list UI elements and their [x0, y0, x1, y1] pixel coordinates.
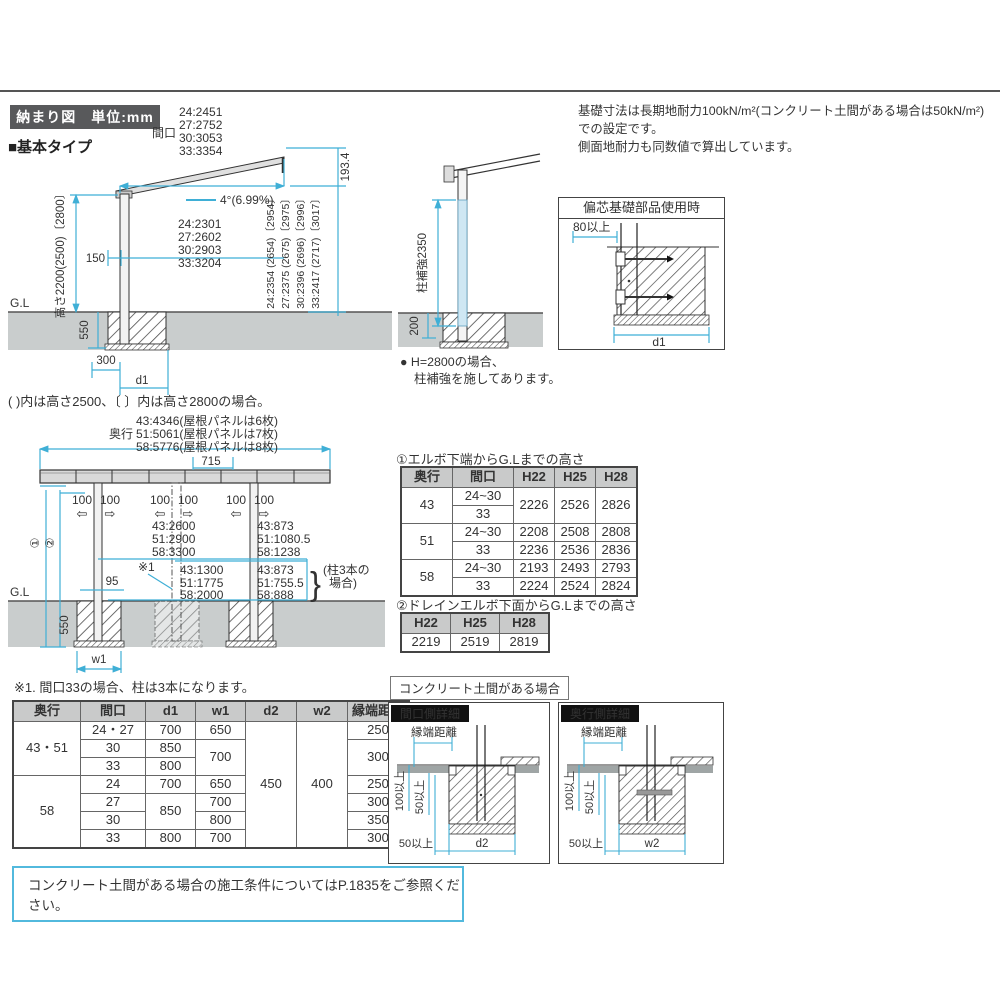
foundation-note: 基礎寸法は長期地耐力100kN/m²(コンクリート土間がある場合は50kN/m²… — [578, 103, 996, 157]
detail-title: 奥行側詳細 — [570, 706, 630, 721]
cell: 2824 — [596, 578, 638, 597]
table-header-row: H22 H25 H28 — [401, 613, 549, 634]
circle-2: ② — [43, 538, 57, 549]
dim-200: 200 — [409, 316, 421, 335]
table-header-row: 奥行 間口 d1 w1 d2 w2 縁端距離 — [13, 701, 409, 722]
maguchi-val-30: 30:3053 — [179, 131, 223, 145]
cell: 850 — [146, 740, 196, 758]
spec-table: 奥行 間口 d1 w1 d2 w2 縁端距離 43・51 24・27 700 6… — [12, 700, 410, 849]
cell: 450 — [246, 722, 297, 849]
cell: 800 — [196, 812, 246, 830]
cell: 2836 — [596, 542, 638, 560]
cell: 2526 — [555, 488, 596, 524]
okuyuki-val-58: 58:5776(屋根パネルは8枚) — [136, 439, 278, 454]
maguchi-detail-drawing: 間口側詳細 — [389, 703, 547, 861]
cell: 58 — [13, 776, 81, 849]
gl-label: G.L — [10, 585, 30, 599]
foundation-block — [440, 313, 508, 348]
post-tie-bar — [637, 790, 672, 795]
cell: 24 — [81, 776, 146, 794]
cell: 650 — [196, 776, 246, 794]
footnote-1: ※1. 間口33の場合、柱は3本になります。 — [14, 677, 255, 696]
column-detail-drawing: 柱補強2350 200 — [398, 138, 543, 390]
okuyuki-detail-box: 奥行側詳細 — [558, 702, 724, 864]
col-header: H28 — [596, 467, 638, 488]
dim-100-d: 100 — [178, 493, 198, 507]
eccentric-foundation-title: 偏芯基礎部品使用時 — [559, 198, 724, 219]
edge-distance-label: 縁端距離 — [411, 725, 457, 739]
cell: 2793 — [596, 560, 638, 578]
bottom-reference-note: コンクリート土間がある場合の施工条件についてはP.1835をご参照ください。 — [12, 866, 464, 922]
upper-right-43: 43:873 — [257, 519, 294, 533]
arrow-left-icon: ⇦ — [231, 506, 242, 521]
upper-center-43: 43:2600 — [152, 519, 196, 533]
foundation-blocks — [74, 601, 276, 647]
cell: 2236 — [514, 542, 555, 560]
dim-50min-v: 50以上 — [413, 780, 426, 814]
side-elevation-drawing: 間口 24:2451 27:2752 30:3053 33:3354 4°(6.… — [8, 100, 398, 395]
cell: 2826 — [596, 488, 638, 524]
dim-d1: d1 — [652, 335, 666, 347]
column-reinforcement-zone — [458, 200, 467, 326]
col-header: 奥行 — [13, 701, 81, 722]
table-row: 58 24~30 2193 2493 2793 — [401, 560, 637, 578]
cell: 2208 — [514, 524, 555, 542]
inner-val-33: 33:3204 — [178, 256, 222, 270]
h2800-note: ● H=2800の場合、 柱補強を施してあります。 — [400, 354, 561, 389]
maguchi-val-27: 27:2752 — [179, 118, 223, 132]
cell: 400 — [297, 722, 348, 849]
okuyuki-detail-drawing: 奥行側詳細 — [559, 703, 721, 861]
col-header: H22 — [401, 613, 451, 634]
table-row: 51 24~30 2208 2508 2808 — [401, 524, 637, 542]
cell: 51 — [401, 524, 453, 560]
cell: 700 — [196, 794, 246, 812]
three-post-note-1: (柱3本の — [323, 562, 370, 577]
dim-100min: 100以上 — [563, 771, 576, 811]
eccentric-foundation-drawing: 80以上 d1 — [559, 219, 722, 347]
dim-100-f: 100 — [254, 493, 274, 507]
upper-right-58: 58:1238 — [257, 545, 301, 559]
right-val-27: 27:2375 (2675)〔2975〕 — [279, 193, 292, 309]
cell: 24~30 — [453, 524, 514, 542]
edge-distance-label: 縁端距離 — [581, 725, 627, 739]
maguchi-detail-box: 間口側詳細 — [388, 702, 550, 864]
cell: 33 — [81, 758, 146, 776]
foundation-block — [105, 312, 169, 350]
col-header: H28 — [500, 613, 550, 634]
cell: 27 — [81, 794, 146, 812]
h2800-note-line2: 柱補強を施してあります。 — [400, 371, 561, 388]
col-header: w2 — [297, 701, 348, 722]
height-label: 高さ2200(2500)〔2800〕 — [53, 188, 67, 318]
cell: 2193 — [514, 560, 555, 578]
table2: H22 H25 H28 2219 2519 2819 — [400, 612, 550, 653]
cell: 2808 — [596, 524, 638, 542]
dim-100min: 100以上 — [393, 771, 406, 811]
inner-val-30: 30:2903 — [178, 243, 222, 257]
cell: 2536 — [555, 542, 596, 560]
maguchi-val-24: 24:2451 — [179, 105, 223, 119]
ref1-label: ※1 — [138, 560, 155, 574]
section-drawing — [567, 725, 713, 834]
lower-center-58: 58:2000 — [180, 588, 224, 602]
col-header: d2 — [246, 701, 297, 722]
foundation-note-line1: 基礎寸法は長期地耐力100kN/m²(コンクリート土間がある場合は50kN/m²… — [578, 103, 996, 139]
cell: 700 — [196, 740, 246, 776]
cell: 30 — [81, 740, 146, 758]
table-row: 2219 2519 2819 — [401, 634, 549, 653]
col-header: w1 — [196, 701, 246, 722]
okuyuki-val-51: 51:5061(屋根パネルは7枚) — [136, 426, 278, 441]
lower-center-43: 43:1300 — [180, 563, 224, 577]
cell: 43 — [401, 488, 453, 524]
cell: 2224 — [514, 578, 555, 597]
top-rule — [0, 90, 1000, 92]
col-header: H25 — [451, 613, 500, 634]
arrow-right-icon: ⇨ — [105, 506, 116, 521]
dim-w1: w1 — [91, 654, 107, 666]
cell: 700 — [196, 830, 246, 849]
right-val-30: 30:2396 (2696)〔2996〕 — [294, 193, 307, 309]
circle-1: ① — [28, 538, 42, 549]
detail-title: 間口側詳細 — [400, 706, 460, 721]
cell: 33 — [453, 506, 514, 524]
right-val-24: 24:2354 (2654)〔2954〕 — [264, 193, 277, 309]
table-row: 43 24~30 2226 2526 2826 — [401, 488, 637, 506]
dim-150: 150 — [86, 253, 105, 265]
arrow-left-icon: ⇦ — [77, 506, 88, 521]
table-header-row: 奥行 間口 H22 H25 H28 — [401, 467, 637, 488]
eccentric-foundation-box: 偏芯基礎部品使用時 — [558, 197, 725, 350]
dim-193: 193.4 — [340, 152, 352, 181]
col-header: 間口 — [453, 467, 514, 488]
cell: 2524 — [555, 578, 596, 597]
right-val-33: 33:2417 (2717)〔3017〕 — [309, 193, 322, 309]
dim-100-b: 100 — [100, 493, 120, 507]
cell: 33 — [453, 542, 514, 560]
dim-95: 95 — [106, 576, 119, 588]
upper-right-51: 51:1080.5 — [257, 532, 311, 546]
cell: 2819 — [500, 634, 550, 653]
reinforce-label: 柱補強2350 — [415, 233, 429, 293]
dim-715: 715 — [201, 456, 220, 468]
cell: 700 — [146, 776, 196, 794]
cell: 800 — [146, 830, 196, 849]
dim-50min-v: 50以上 — [583, 780, 596, 814]
gl-label: G.L — [10, 296, 30, 310]
concrete-case-label: コンクリート土間がある場合 — [390, 676, 569, 700]
three-post-note-2: 場合) — [329, 575, 357, 590]
cell: 850 — [146, 794, 196, 830]
dim-d1: d1 — [136, 375, 149, 387]
cell: 2226 — [514, 488, 555, 524]
cell: 43・51 — [13, 722, 81, 776]
cell: 58 — [401, 560, 453, 597]
cell: 2519 — [451, 634, 500, 653]
cell: 800 — [146, 758, 196, 776]
cell: 24・27 — [81, 722, 146, 740]
upper-center-51: 51:2900 — [152, 532, 196, 546]
dim-100-a: 100 — [72, 493, 92, 507]
col-header: H22 — [514, 467, 555, 488]
cell: 30 — [81, 812, 146, 830]
foundation-section — [607, 223, 719, 325]
col-header: 間口 — [81, 701, 146, 722]
dim-300: 300 — [96, 355, 115, 367]
maguchi-label: 間口 — [152, 126, 176, 140]
cell: 650 — [196, 722, 246, 740]
page: 納まり図 単位:mm ■基本タイプ 基礎寸法は長期地耐力100kN/m²(コンク… — [0, 0, 1000, 1000]
okuyuki-label: 奥行 — [109, 427, 133, 441]
dim-100-e: 100 — [226, 493, 246, 507]
cell: 33 — [81, 830, 146, 849]
dim-w2: w2 — [644, 838, 660, 850]
col-header: d1 — [146, 701, 196, 722]
table-row: 43・51 24・27 700 650 450 400 250 — [13, 722, 409, 740]
inner-val-24: 24:2301 — [178, 217, 222, 231]
dim-550: 550 — [59, 615, 71, 634]
dim-100-c: 100 — [150, 493, 170, 507]
lower-right-43: 43:873 — [257, 563, 294, 577]
maguchi-val-33: 33:3354 — [179, 144, 223, 158]
dim-550: 550 — [79, 320, 91, 339]
parens-note: ( )内は高さ2500、〔 〕内は高さ2800の場合。 — [8, 391, 270, 410]
front-elevation-drawing: 奥行 43:4346(屋根パネルは6枚) 51:5061(屋根パネルは7枚) 5… — [8, 413, 393, 675]
cell: 2493 — [555, 560, 596, 578]
foundation-note-line2: 側面地耐力も同数値で算出しています。 — [578, 139, 996, 157]
cell: 33 — [453, 578, 514, 597]
h2800-note-line1: ● H=2800の場合、 — [400, 354, 561, 371]
dim-50min-b: 50以上 — [399, 837, 433, 850]
upper-center-58: 58:3300 — [152, 545, 196, 559]
cell: 2508 — [555, 524, 596, 542]
table1: 奥行 間口 H22 H25 H28 43 24~30 2226 2526 282… — [400, 466, 638, 597]
cell: 24~30 — [453, 488, 514, 506]
dim-50min-b: 50以上 — [569, 837, 603, 850]
cell: 24~30 — [453, 560, 514, 578]
dim-d2: d2 — [476, 838, 489, 850]
col-header: H25 — [555, 467, 596, 488]
table-row: 58 24 700 650 250 — [13, 776, 409, 794]
brace: } — [310, 565, 321, 602]
col-header: 奥行 — [401, 467, 453, 488]
section-drawing — [397, 725, 539, 834]
cell: 2219 — [401, 634, 451, 653]
lower-right-58: 58:888 — [257, 588, 294, 602]
dim-80min: 80以上 — [573, 220, 610, 234]
cell: 700 — [146, 722, 196, 740]
okuyuki-val-43: 43:4346(屋根パネルは6枚) — [136, 413, 278, 428]
inner-val-27: 27:2602 — [178, 230, 222, 244]
